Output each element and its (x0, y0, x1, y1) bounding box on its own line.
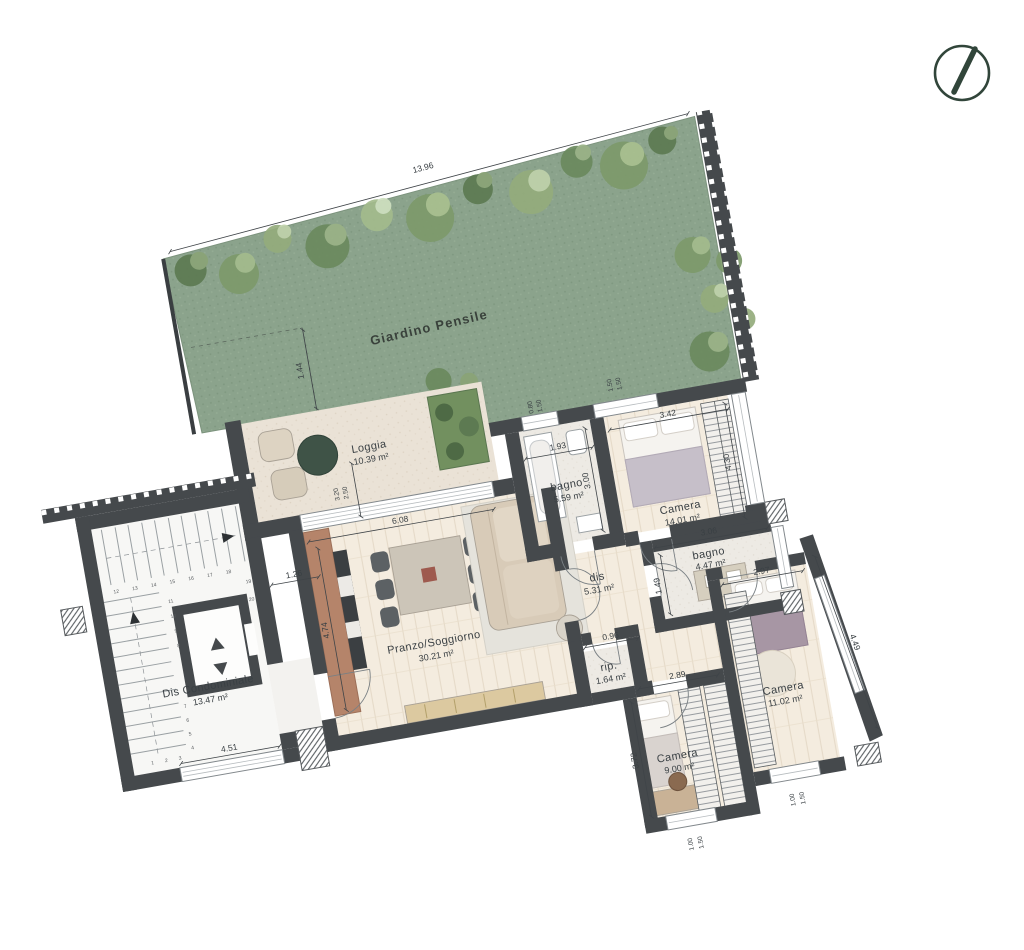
svg-text:1.50: 1.50 (798, 791, 807, 805)
svg-text:1.50: 1.50 (697, 835, 706, 849)
svg-text:0.96: 0.96 (601, 630, 619, 643)
plan-rotated-group: Giardino Pensile 13.96 1.44 (0, 99, 897, 950)
loggia-lounge-chair (270, 466, 309, 501)
svg-text:13.96: 13.96 (411, 160, 434, 175)
svg-text:1.00: 1.00 (687, 837, 696, 851)
dim-window-bottom-2: 1.00 1.50 (789, 791, 808, 807)
dining-chair (379, 606, 400, 629)
washbasin (576, 513, 602, 533)
table-centerpiece (421, 566, 437, 582)
floor-plan-page: Giardino Pensile 13.96 1.44 (0, 0, 1024, 950)
svg-text:2.89: 2.89 (668, 669, 686, 682)
compass-needle (954, 49, 975, 92)
dining-chair (374, 578, 395, 601)
dining-chair (370, 550, 391, 573)
dim-window-bottom-1: 1.00 1.50 (687, 835, 706, 851)
svg-text:1.00: 1.00 (789, 793, 798, 807)
north-compass-icon (935, 46, 989, 100)
sofa-cushion (502, 558, 561, 620)
loggia-lounge-chair (257, 427, 296, 462)
floor-plan-drawing: Giardino Pensile 13.96 1.44 (0, 0, 1024, 950)
